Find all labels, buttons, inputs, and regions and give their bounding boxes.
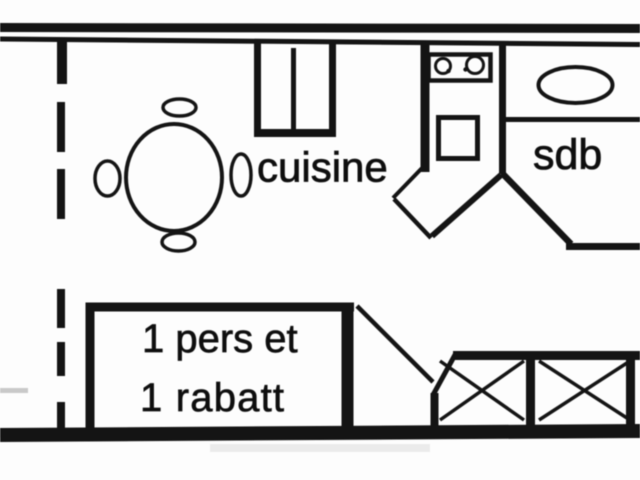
svg-text:1 pers et: 1 pers et: [142, 317, 298, 361]
svg-text:1 rabatt: 1 rabatt: [140, 376, 285, 420]
svg-text:sdb: sdb: [533, 131, 602, 179]
svg-text:cuisine: cuisine: [257, 144, 388, 191]
